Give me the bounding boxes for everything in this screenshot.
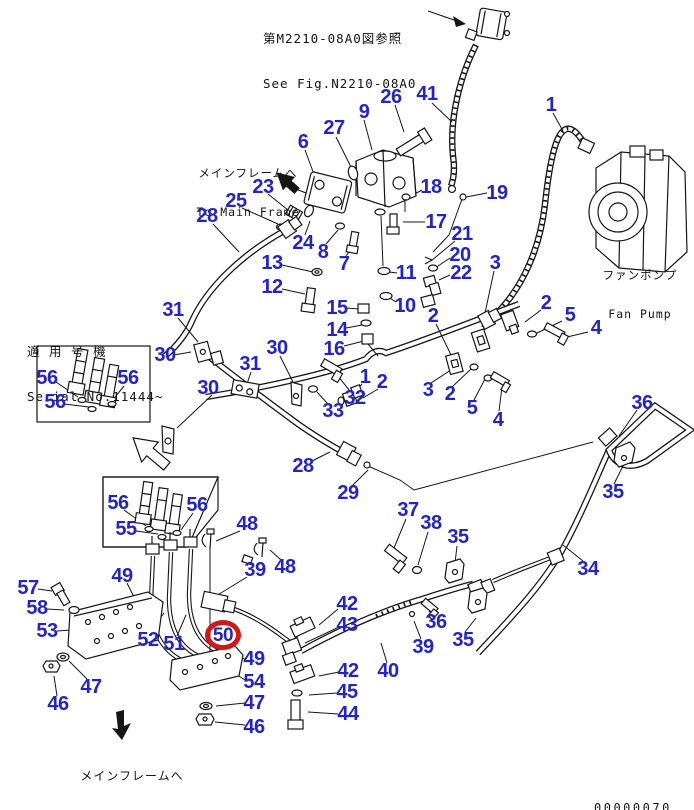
part-callout-56: 56 xyxy=(36,368,57,388)
part-callout-4: 4 xyxy=(493,410,504,430)
part-callout-29: 29 xyxy=(337,483,358,503)
part-callout-30: 30 xyxy=(197,378,218,398)
part-callout-30: 30 xyxy=(266,338,287,358)
part-callout-46: 46 xyxy=(47,694,68,714)
part-callout-14: 14 xyxy=(326,320,347,340)
part-callout-11: 11 xyxy=(396,263,416,283)
highlighted-part-callout-50: 50 xyxy=(205,620,241,650)
part-callout-57: 57 xyxy=(17,578,38,598)
part-callout-1: 1 xyxy=(360,367,371,387)
fan-pump-ja: ファンポンプ xyxy=(596,269,684,282)
part-callout-5: 5 xyxy=(565,305,576,325)
fan-pump-label: ファンポンプ Fan Pump xyxy=(596,243,684,347)
part-callout-32: 32 xyxy=(344,388,365,408)
part-callout-47: 47 xyxy=(80,677,101,697)
part-callout-35: 35 xyxy=(447,527,468,547)
part-callout-39: 39 xyxy=(244,560,265,580)
part-callout-7: 7 xyxy=(339,254,350,274)
part-callout-56: 56 xyxy=(44,392,65,412)
part-callout-2: 2 xyxy=(445,384,456,404)
part-callout-35: 35 xyxy=(452,630,473,650)
part-callout-15: 15 xyxy=(326,298,347,318)
part-callout-31: 31 xyxy=(239,354,260,374)
part-callout-46: 46 xyxy=(243,717,264,737)
part-callout-27: 27 xyxy=(323,118,344,138)
part-callout-22: 22 xyxy=(450,263,471,283)
part-callout-5: 5 xyxy=(467,398,478,418)
part-callout-3: 3 xyxy=(423,380,434,400)
part-callout-52: 52 xyxy=(137,630,158,650)
part-callout-49: 49 xyxy=(243,649,264,669)
part-callout-38: 38 xyxy=(420,513,441,533)
part-callout-2: 2 xyxy=(541,293,552,313)
part-callout-53: 53 xyxy=(36,621,57,641)
part-callout-36: 36 xyxy=(425,612,446,632)
part-callout-51: 51 xyxy=(163,634,184,654)
serial-ja: 適 用 号 機 xyxy=(27,344,163,359)
part-callout-54: 54 xyxy=(243,672,264,692)
part-callout-35: 35 xyxy=(602,482,623,502)
part-callout-41: 41 xyxy=(416,84,437,104)
part-callout-55: 55 xyxy=(115,519,136,539)
part-callout-9: 9 xyxy=(359,102,370,122)
main-frame-top-ja: メインフレームへ xyxy=(194,167,302,180)
part-callout-18: 18 xyxy=(420,177,441,197)
part-callout-48: 48 xyxy=(274,557,295,577)
part-callout-37: 37 xyxy=(397,500,418,520)
part-callout-56: 56 xyxy=(117,368,138,388)
part-callout-44: 44 xyxy=(337,704,358,724)
part-callout-26: 26 xyxy=(380,87,401,107)
part-callout-2: 2 xyxy=(377,372,388,392)
part-callout-23: 23 xyxy=(252,177,273,197)
part-callout-17: 17 xyxy=(425,212,446,232)
part-callout-2: 2 xyxy=(428,306,439,326)
reference-note-ja: 第M2210-08A0図参照 xyxy=(263,31,416,46)
part-callout-48: 48 xyxy=(236,514,257,534)
main-frame-bottom-ja: メインフレームへ xyxy=(76,769,188,783)
part-callout-21: 21 xyxy=(451,224,472,244)
part-callout-10: 10 xyxy=(394,296,415,316)
part-callout-56: 56 xyxy=(107,493,128,513)
part-callout-31: 31 xyxy=(162,300,183,320)
part-callout-49: 49 xyxy=(111,566,132,586)
page-corner-code: 00000070 xyxy=(594,801,672,810)
part-callout-45: 45 xyxy=(336,682,357,702)
part-callout-25: 25 xyxy=(225,191,246,211)
part-callout-43: 43 xyxy=(336,615,357,635)
part-callout-8: 8 xyxy=(318,242,329,262)
part-callout-47: 47 xyxy=(243,693,264,713)
part-callout-42: 42 xyxy=(337,661,358,681)
part-callout-28: 28 xyxy=(292,456,313,476)
part-callout-33: 33 xyxy=(322,401,343,421)
part-callout-4: 4 xyxy=(591,318,602,338)
part-callout-1: 1 xyxy=(546,95,557,115)
part-callout-19: 19 xyxy=(486,183,507,203)
part-callout-34: 34 xyxy=(577,559,598,579)
part-callout-58: 58 xyxy=(26,598,47,618)
part-callout-28: 28 xyxy=(196,206,217,226)
part-callout-42: 42 xyxy=(336,594,357,614)
fan-pump-en: Fan Pump xyxy=(596,308,684,321)
part-callout-6: 6 xyxy=(298,132,309,152)
part-callout-36: 36 xyxy=(631,393,652,413)
part-callout-30: 30 xyxy=(154,345,175,365)
part-callout-56: 56 xyxy=(186,495,207,515)
parts-diagram-page: 第M2210-08A0図参照 See Fig.N2210-08A0 メインフレー… xyxy=(0,0,694,810)
part-callout-3: 3 xyxy=(490,253,501,273)
main-frame-label-bottom: メインフレームへ To Main Frame xyxy=(76,741,188,810)
part-callout-39: 39 xyxy=(412,637,433,657)
main-frame-label-top: メインフレームへ To Main Frame xyxy=(194,141,302,245)
part-callout-16: 16 xyxy=(323,339,344,359)
part-callout-13: 13 xyxy=(261,253,282,273)
part-callout-40: 40 xyxy=(377,661,398,681)
part-callout-12: 12 xyxy=(261,277,282,297)
part-callout-24: 24 xyxy=(292,233,313,253)
